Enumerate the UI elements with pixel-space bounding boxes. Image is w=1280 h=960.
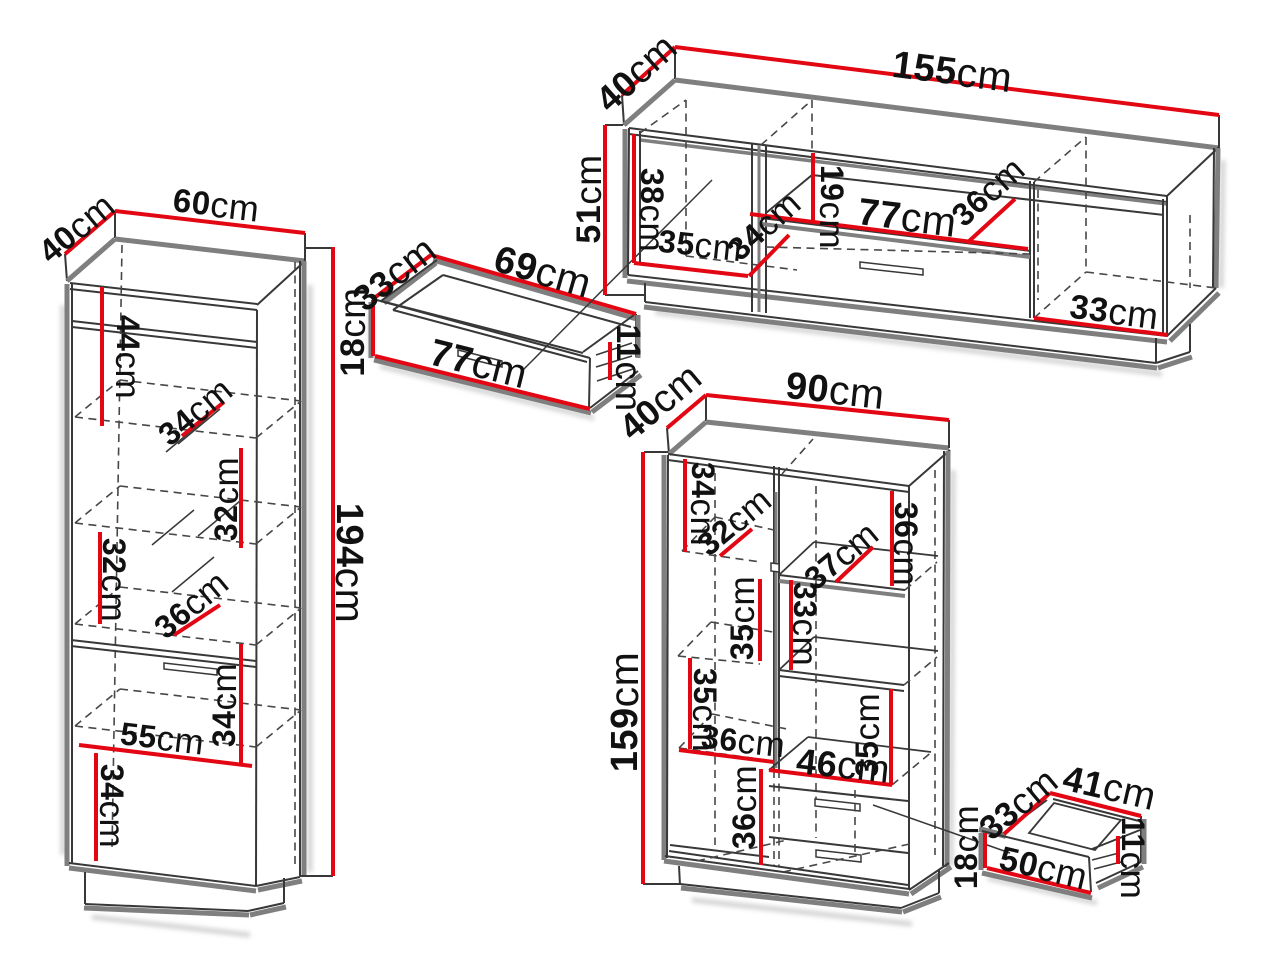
- svg-text:18cm: 18cm: [947, 805, 986, 889]
- svg-text:33cm: 33cm: [785, 582, 824, 666]
- svg-text:19cm: 19cm: [812, 165, 851, 249]
- svg-text:11cm: 11cm: [1113, 817, 1152, 899]
- svg-text:36cm: 36cm: [886, 502, 925, 586]
- svg-text:159cm: 159cm: [601, 652, 647, 773]
- svg-text:36cm: 36cm: [725, 765, 764, 849]
- svg-text:35cm: 35cm: [723, 576, 762, 660]
- svg-text:44cm: 44cm: [108, 315, 147, 399]
- svg-text:194cm: 194cm: [327, 503, 373, 624]
- svg-text:18cm: 18cm: [332, 287, 373, 376]
- svg-text:32cm: 32cm: [94, 538, 133, 622]
- svg-text:35cm: 35cm: [848, 693, 887, 777]
- svg-text:51cm: 51cm: [568, 154, 609, 243]
- svg-text:32cm: 32cm: [207, 457, 246, 541]
- svg-text:34cm: 34cm: [92, 764, 131, 848]
- svg-text:34cm: 34cm: [205, 663, 244, 747]
